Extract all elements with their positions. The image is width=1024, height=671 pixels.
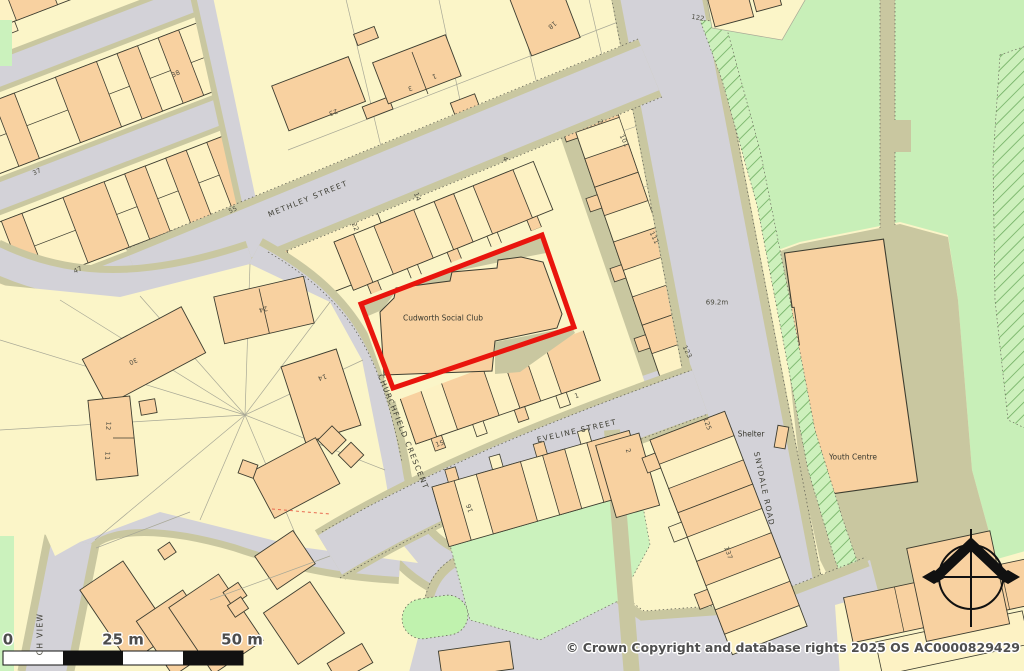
map-graphic: [0, 0, 1024, 671]
scale-bar: [3, 651, 243, 665]
green-patch: [0, 20, 12, 66]
park-path: [880, 0, 895, 235]
map-canvas[interactable]: Cudworth Social Club Youth Centre Shelte…: [0, 0, 1024, 671]
